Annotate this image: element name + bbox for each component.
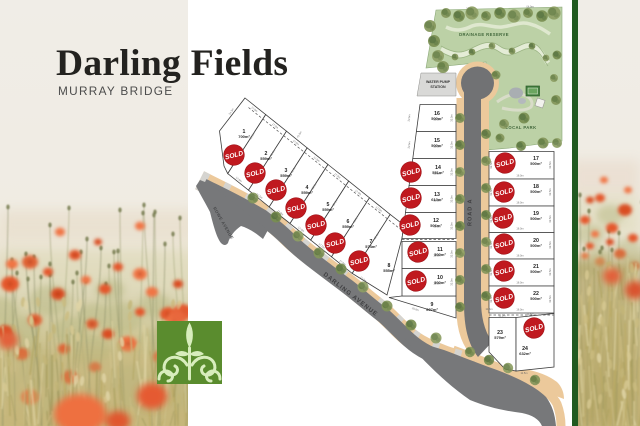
svg-text:579m²: 579m²: [494, 335, 506, 340]
svg-text:559m²: 559m²: [342, 224, 354, 229]
svg-text:LOCAL PARK: LOCAL PARK: [505, 125, 536, 130]
svg-text:500m²: 500m²: [530, 269, 542, 274]
svg-text:32.5m: 32.5m: [407, 141, 412, 149]
svg-text:500m²: 500m²: [530, 216, 542, 221]
svg-text:ROAD A: ROAD A: [468, 199, 474, 227]
svg-text:41.9m: 41.9m: [296, 130, 303, 138]
svg-text:500m²: 500m²: [431, 143, 443, 148]
svg-text:32.5m: 32.5m: [450, 278, 454, 285]
svg-text:559m²: 559m²: [280, 173, 292, 178]
svg-text:DRAINAGE RESERVE: DRAINAGE RESERVE: [459, 32, 509, 37]
svg-text:500m²: 500m²: [434, 280, 446, 285]
svg-text:25.6m: 25.6m: [411, 306, 419, 312]
svg-text:32.5m: 32.5m: [450, 222, 454, 229]
svg-text:WATER PUMP: WATER PUMP: [426, 80, 451, 84]
svg-text:500m²: 500m²: [530, 189, 542, 194]
svg-text:STATION: STATION: [430, 85, 446, 89]
svg-text:607m²: 607m²: [426, 307, 438, 312]
svg-text:11.5m: 11.5m: [526, 312, 533, 316]
svg-text:32.5m: 32.5m: [407, 114, 412, 122]
svg-text:500m²: 500m²: [431, 116, 443, 121]
svg-text:506m²: 506m²: [430, 223, 442, 228]
svg-text:32.5m: 32.5m: [548, 188, 552, 195]
svg-text:32.5m: 32.5m: [450, 168, 454, 175]
svg-text:32.5m: 32.5m: [548, 161, 552, 168]
svg-text:32.5m: 32.5m: [450, 141, 454, 148]
svg-text:16.0m: 16.0m: [516, 254, 523, 258]
svg-text:574m²: 574m²: [365, 244, 377, 249]
svg-text:32.5m: 32.5m: [548, 215, 552, 222]
svg-text:32.5m: 32.5m: [548, 295, 552, 302]
svg-text:559m²: 559m²: [301, 190, 313, 195]
svg-text:500m²: 500m²: [530, 243, 542, 248]
svg-text:559m²: 559m²: [260, 156, 272, 161]
svg-text:700m²: 700m²: [238, 134, 250, 139]
svg-text:16.0m: 16.0m: [516, 174, 523, 178]
svg-text:16.0m: 16.0m: [516, 308, 523, 312]
svg-text:16.0m: 16.0m: [516, 281, 523, 285]
svg-text:56.0m: 56.0m: [526, 4, 533, 8]
svg-text:613m²: 613m²: [431, 197, 443, 202]
svg-text:551m²: 551m²: [432, 170, 444, 175]
svg-text:555m²: 555m²: [383, 268, 395, 273]
svg-text:32.5m: 32.5m: [548, 241, 552, 248]
svg-text:500m²: 500m²: [530, 161, 542, 166]
svg-text:16.0m: 16.0m: [516, 201, 523, 205]
svg-text:559m²: 559m²: [322, 207, 334, 212]
svg-text:32.5m: 32.5m: [450, 195, 454, 202]
svg-text:500m²: 500m²: [434, 252, 446, 257]
svg-text:11.5m: 11.5m: [485, 307, 492, 311]
svg-text:16.0m: 16.0m: [516, 227, 523, 231]
svg-text:32.5m: 32.5m: [450, 250, 454, 257]
svg-text:32.5m: 32.5m: [450, 114, 454, 121]
svg-text:11.5m: 11.5m: [498, 314, 505, 318]
svg-text:11.5m: 11.5m: [520, 371, 527, 375]
svg-text:500m²: 500m²: [530, 296, 542, 301]
svg-text:32.5m: 32.5m: [548, 268, 552, 275]
svg-text:632m²: 632m²: [519, 351, 531, 356]
